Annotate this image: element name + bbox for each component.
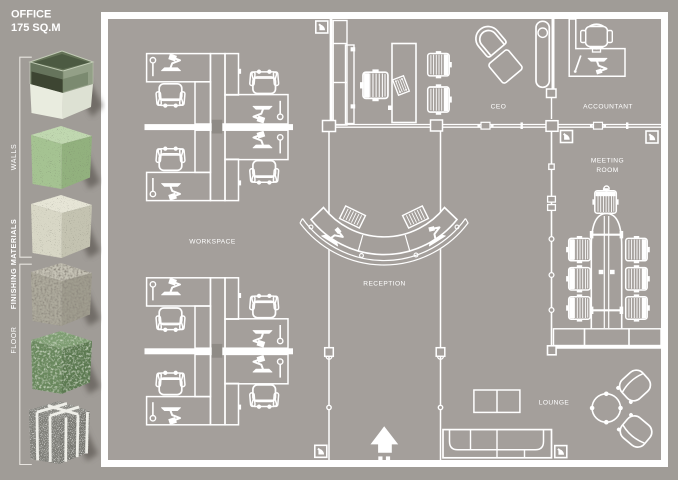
svg-text:MEETING: MEETING — [591, 157, 624, 164]
svg-text:ROOM: ROOM — [596, 167, 618, 174]
svg-text:WORKSPACE: WORKSPACE — [189, 238, 236, 245]
svg-text:FLOOR: FLOOR — [11, 326, 18, 353]
svg-text:WALLS: WALLS — [11, 144, 18, 170]
svg-text:RECEPTION: RECEPTION — [363, 280, 406, 287]
svg-text:CEO: CEO — [491, 103, 507, 110]
svg-text:LOUNGE: LOUNGE — [539, 400, 570, 407]
svg-text:FINISHING MATERIALS: FINISHING MATERIALS — [9, 219, 18, 309]
svg-text:OFFICE: OFFICE — [11, 8, 51, 20]
svg-text:ACCOUNTANT: ACCOUNTANT — [583, 104, 633, 111]
svg-text:175 SQ.M: 175 SQ.M — [11, 22, 61, 34]
